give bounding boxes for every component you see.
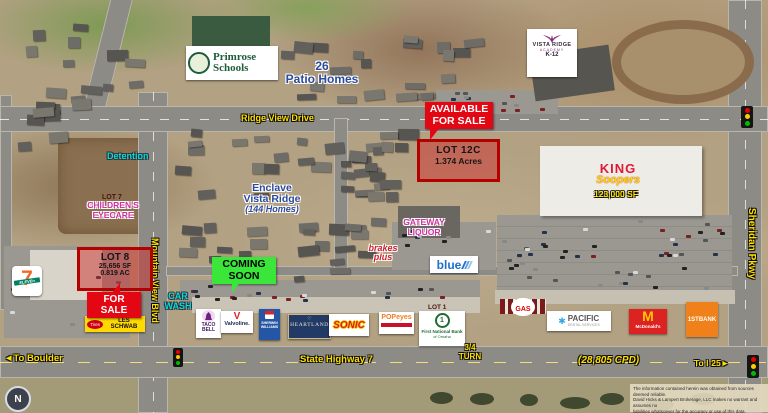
les-schwab-tires-badge: Tires (87, 320, 103, 329)
vista-ridge-academy-sign: VISTA RIDGE ACADEMY K-12 (527, 29, 577, 77)
first-national-bank-sign: 1 First National Bank of Omaha (419, 311, 465, 346)
rooftop (348, 150, 367, 163)
rooftop (365, 163, 377, 171)
rooftop (81, 85, 103, 95)
rooftop (175, 165, 192, 175)
parked-car (418, 288, 423, 291)
parked-car (509, 267, 514, 270)
eyecare-line2: EYECARE (80, 211, 146, 221)
parked-car (70, 323, 75, 326)
rooftop (190, 237, 205, 247)
seven-eleven-sign: 7 ELEVEn (12, 266, 42, 296)
rooftop (303, 229, 315, 236)
parked-car (517, 254, 522, 257)
parked-car (247, 294, 252, 297)
parked-car (525, 248, 530, 251)
site-aerial-map: Primrose Schools 26 Patio Homes VISTA RI… (0, 0, 768, 413)
rooftop (72, 99, 92, 111)
primrose-logo-icon (188, 52, 210, 74)
les-schwab-sign: Tires LES SCHWAB (85, 316, 145, 332)
rooftop (198, 189, 216, 199)
rooftop (68, 37, 80, 48)
taco-bell-name2: BELL (196, 328, 221, 334)
turn-line2: TURN (456, 353, 484, 362)
rooftop (49, 131, 69, 143)
parked-car (717, 229, 722, 232)
state-highway-7-label: State Highway 7 (300, 354, 373, 365)
parked-car (514, 264, 519, 267)
parked-car (713, 253, 718, 256)
coming-soon-pointer (232, 281, 241, 293)
sonic-sign: SONIC (329, 314, 369, 336)
blue-waves-icon (463, 261, 471, 269)
parked-car (615, 271, 620, 274)
parked-car (455, 92, 460, 95)
parked-car (303, 299, 308, 302)
parked-car (371, 291, 376, 294)
rooftop (421, 93, 433, 101)
parked-car (514, 104, 519, 107)
tree-cluster (600, 393, 624, 405)
right-arrow-icon: ► (721, 358, 729, 368)
rooftop (443, 50, 455, 62)
parked-car (540, 108, 545, 111)
les-schwab-name: LES SCHWAB (105, 318, 143, 330)
parked-car (515, 109, 520, 112)
rooftop (281, 51, 294, 60)
brakes-line2: plus (364, 253, 402, 262)
rooftop (247, 226, 267, 236)
lot8-ac: 0.819 AC (80, 270, 150, 277)
enclave-homes: (144 Homes) (230, 205, 314, 214)
patio-homes-label: 26 Patio Homes (276, 60, 368, 85)
rooftop (404, 35, 419, 43)
parked-car (660, 229, 665, 232)
parked-car (501, 109, 506, 112)
rooftop (324, 142, 344, 155)
popeyes-banner (381, 323, 413, 327)
coming-line2: SOON (215, 271, 273, 283)
rooftop (441, 74, 455, 84)
parked-car (667, 254, 672, 257)
pacific-flower-icon: ✱ (558, 316, 566, 327)
rooftop (33, 30, 46, 42)
heartland-sign: ♡ HEARTLAND (288, 314, 331, 339)
rooftop (368, 192, 384, 202)
disclaimer-line1: The information contained herein was obt… (633, 386, 767, 397)
traffic-light-icon (173, 348, 183, 367)
heartland-name: HEARTLAND (289, 322, 330, 328)
rooftop (26, 46, 38, 58)
rooftop (294, 276, 304, 283)
parked-car (528, 253, 533, 256)
disclaimer-box: The information contained herein was obt… (630, 384, 768, 412)
car-wash-line2: WASH (156, 302, 200, 312)
parked-car (698, 231, 703, 234)
parked-car (507, 259, 512, 262)
pacific-name: PACIFIC (568, 315, 600, 323)
tree-cluster (520, 394, 538, 406)
parked-car (215, 298, 220, 301)
rooftop (398, 129, 419, 140)
for-sale-sign: FOR SALE (87, 292, 141, 318)
rooftop (264, 164, 279, 175)
rooftop (297, 137, 308, 145)
parked-car (502, 240, 507, 243)
parked-car (502, 102, 507, 105)
king-soopers-size-label: 123,000 SF (594, 189, 638, 199)
blue-name: blue (437, 259, 462, 271)
cpd-label: (28,805 CPD) (578, 355, 639, 366)
parked-car (510, 95, 515, 98)
rooftop (298, 245, 320, 257)
parked-car (575, 255, 580, 258)
fnb-sub: of Omaha (419, 334, 465, 339)
patio-homes-text: Patio Homes (276, 73, 368, 86)
parked-car (703, 239, 708, 242)
golden-arches-icon: M (629, 309, 667, 324)
blue-fcu-sign: blue (430, 256, 478, 273)
rooftop (191, 128, 203, 137)
rooftop (63, 60, 74, 67)
firstbank-sign: 1STBANK (686, 302, 718, 337)
parked-car (272, 296, 277, 299)
compass-north-icon: N (5, 386, 31, 412)
parked-car (533, 268, 538, 271)
king-soopers-soopers: Soopers (591, 175, 645, 186)
gateway-liquor-label: GATEWAY LIQUOR (400, 218, 448, 238)
parked-car (659, 254, 664, 257)
rooftop (337, 96, 356, 103)
sonic-name: SONIC (333, 320, 365, 331)
traffic-light-icon (741, 106, 753, 128)
disclaimer-line3: liabilities whatsoever for the accuracy … (633, 409, 767, 413)
taco-bell-sign: TACO BELL (196, 309, 221, 338)
rooftop (405, 83, 425, 89)
rooftop (341, 161, 351, 167)
rooftop (103, 84, 114, 92)
to-i25-label: To I-25► (694, 358, 729, 368)
academy-grades: K-12 (528, 52, 576, 58)
valvoline-sign: V Valvoline. (221, 311, 253, 333)
rooftop (453, 48, 470, 57)
parked-car (560, 256, 565, 259)
rooftop (217, 247, 232, 254)
rooftop (396, 92, 418, 101)
parked-car (520, 262, 525, 265)
brakes-plus-label: brakes plus (364, 244, 402, 262)
parked-car (686, 235, 691, 238)
parked-car (720, 232, 725, 235)
patio-homes-count: 26 (276, 60, 368, 73)
rooftop (182, 225, 203, 236)
pacific-dental-sign: ✱ PACIFIC DENTAL SERVICES (547, 311, 611, 331)
disclaimer-line2: David Hicks & Lampert Brokerage, LLC mak… (633, 397, 767, 408)
parked-car (256, 292, 261, 295)
rooftop (382, 142, 394, 153)
left-arrow-icon: ◄ (4, 353, 13, 364)
lot8-title: LOT 8 (80, 252, 150, 263)
primrose-schools-sign: Primrose Schools (186, 46, 278, 80)
parked-car (386, 292, 391, 295)
parked-car (10, 311, 15, 314)
rooftop (335, 245, 355, 253)
rooftop (204, 223, 217, 234)
gas-oval: GAS (511, 298, 534, 316)
parked-car (451, 98, 456, 101)
parked-car (628, 273, 633, 276)
available-line1: AVAILABLE (428, 104, 490, 116)
rooftop (345, 223, 361, 231)
parked-car (208, 285, 213, 288)
parked-car (646, 275, 651, 278)
rooftop (380, 132, 398, 140)
parked-car (463, 92, 468, 95)
parked-car (673, 254, 678, 257)
tree-cluster (430, 392, 453, 404)
parked-car (653, 286, 658, 289)
rooftop (464, 38, 485, 48)
rooftop (179, 248, 197, 258)
parked-car (592, 245, 597, 248)
popeyes-name: POPeyes (379, 314, 414, 321)
rooftop (293, 41, 313, 54)
rooftop (297, 94, 316, 101)
parked-car (673, 243, 678, 246)
gateway-line2: LIQUOR (400, 228, 448, 238)
detention-label: Detention (107, 151, 149, 161)
coming-soon-sign: COMING SOON (212, 257, 276, 284)
childrens-eyecare-label: CHILDREN'S EYECARE (80, 201, 146, 221)
enclave-label: Enclave Vista Ridge (144 Homes) (230, 183, 314, 214)
parked-car (543, 245, 548, 248)
phoenix-icon (528, 31, 576, 42)
parked-car (563, 250, 568, 253)
rooftop (250, 239, 267, 249)
parked-car (232, 297, 237, 300)
parked-car (440, 296, 445, 299)
parked-car (679, 253, 684, 256)
rooftop (298, 157, 315, 165)
parked-car (486, 230, 491, 233)
rooftop (353, 51, 363, 60)
rooftop (33, 107, 55, 118)
lot-12c-box: LOT 12C 1.374 Acres (417, 139, 500, 182)
rooftop (129, 80, 144, 88)
parked-car (286, 298, 291, 301)
rooftop (371, 218, 386, 227)
rooftop (330, 268, 350, 274)
tree-cluster (560, 397, 590, 409)
sherwin-williams-sign: SHERWIN WILLIAMS (259, 309, 280, 340)
parked-car (464, 96, 469, 99)
valvoline-v-icon: V (221, 312, 253, 321)
firstbank-name: 1STBANK (688, 317, 716, 323)
rooftop (341, 186, 354, 193)
rooftop (364, 89, 385, 101)
parked-car (442, 240, 447, 243)
rooftop (73, 23, 88, 31)
rooftop (274, 152, 289, 162)
car-wash-label: CAR WASH (156, 292, 200, 312)
parked-car (633, 271, 638, 274)
king-soopers-logo: KING Soopers (591, 162, 645, 186)
popeyes-sign: POPeyes (379, 312, 414, 334)
parked-car (598, 284, 603, 287)
sherwin-paint-icon (265, 311, 274, 319)
lot12c-area: 1.374 Acres (420, 156, 497, 166)
rooftop (395, 143, 408, 152)
ridge-view-drive-label: Ridge View Drive (241, 113, 314, 123)
compass-n: N (14, 394, 21, 405)
valvoline-name: Valvoline. (221, 321, 253, 327)
pacific-sub: DENTAL SERVICES (568, 323, 600, 327)
rooftop (125, 58, 145, 67)
fnb-lot-label: LOT 1 (428, 304, 446, 311)
rooftop (380, 180, 401, 189)
three-quarter-turn-label: 3/4 TURN (456, 344, 484, 362)
fnb-one: 1 (440, 317, 444, 324)
parked-car (704, 287, 709, 290)
taco-bell-icon (202, 310, 215, 322)
rooftop (232, 139, 247, 147)
parked-car (385, 296, 390, 299)
parked-car (405, 244, 410, 247)
rooftop (18, 142, 32, 152)
parked-car (527, 276, 532, 279)
parked-car (705, 223, 710, 226)
traffic-light-icon (747, 355, 759, 378)
mcdonalds-sign: M McDonald's (629, 309, 667, 334)
parked-car (583, 228, 588, 231)
gas-name: GAS (515, 306, 530, 313)
sheridan-pkwy-label: Sheridan Pkwy (746, 208, 757, 279)
parked-car (553, 279, 558, 282)
parked-car (682, 267, 687, 270)
to-boulder-label: ◄To Boulder (4, 353, 63, 364)
parked-car (670, 238, 675, 241)
rooftop (46, 87, 67, 98)
primrose-name-line2: Schools (213, 63, 256, 74)
to-boulder-text: To Boulder (13, 353, 62, 364)
fnb-circle-icon: 1 (435, 313, 450, 328)
lot12c-title: LOT 12C (420, 145, 497, 156)
to-i25-text: To I-25 (694, 358, 721, 368)
available-sign-pointer (430, 126, 441, 140)
parked-car (623, 282, 628, 285)
rooftop (330, 258, 345, 265)
mcdonalds-name: McDonald's (629, 324, 667, 329)
gas-canopy-sign: GAS (500, 299, 546, 314)
parked-car (302, 294, 307, 297)
parked-car (638, 220, 643, 223)
sherwin-name2: WILLIAMS (259, 325, 280, 329)
tree-cluster (470, 393, 494, 405)
parked-car (542, 231, 547, 234)
lot8-sf: 25,656 SF (80, 263, 150, 270)
coming-line1: COMING (215, 259, 273, 271)
rooftop (386, 192, 398, 202)
parked-car (591, 255, 596, 258)
rooftop (254, 136, 269, 143)
school-track-oval (612, 20, 754, 104)
parked-car (429, 288, 434, 291)
